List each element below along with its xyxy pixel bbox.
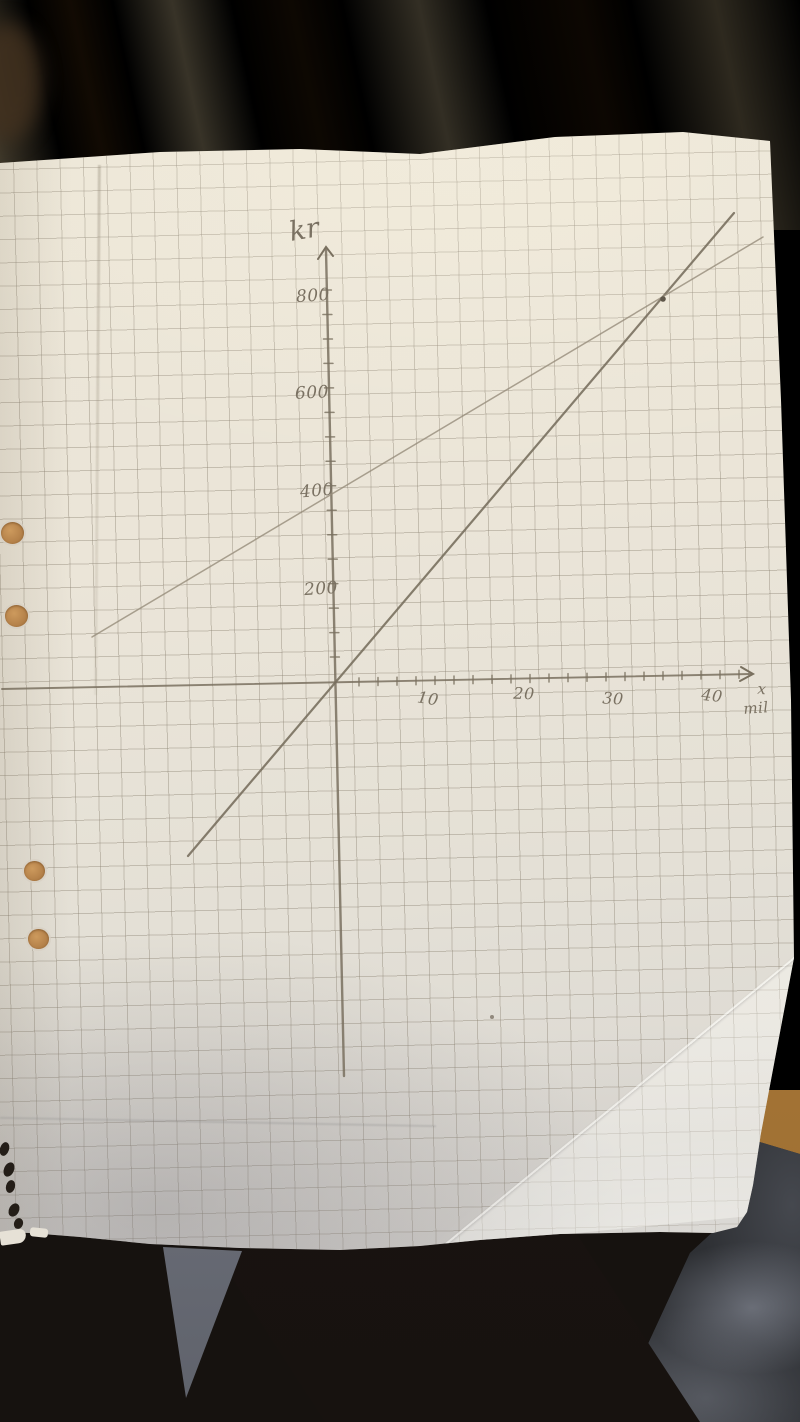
line-through-origin [188,213,734,856]
hand-drawn-graph: kr 800 600 400 200 10 20 30 40 x mil [0,0,800,1422]
x-axis-unit-label: mil [743,698,770,718]
y-tick-label-400: 400 [298,480,335,503]
x-axis-minor-ticks [359,670,739,686]
x-tick-label-30: 30 [602,688,624,708]
x-tick-label-20: 20 [512,684,535,704]
x-axis [2,674,750,689]
x-tick-label-40: 40 [699,685,723,706]
y-axis-unit-label: kr [287,212,324,248]
stray-pencil-mark [490,1015,494,1019]
y-tick-label-200: 200 [302,578,338,600]
x-axis-variable-label: x [757,680,768,699]
x-tick-label-10: 10 [416,687,440,709]
y-axis [326,250,344,1076]
y-tick-label-600: 600 [295,382,330,404]
y-tick-label-800: 800 [295,285,330,307]
photo-scene: kr 800 600 400 200 10 20 30 40 x mil [0,0,800,1422]
intersection-point [660,296,666,302]
